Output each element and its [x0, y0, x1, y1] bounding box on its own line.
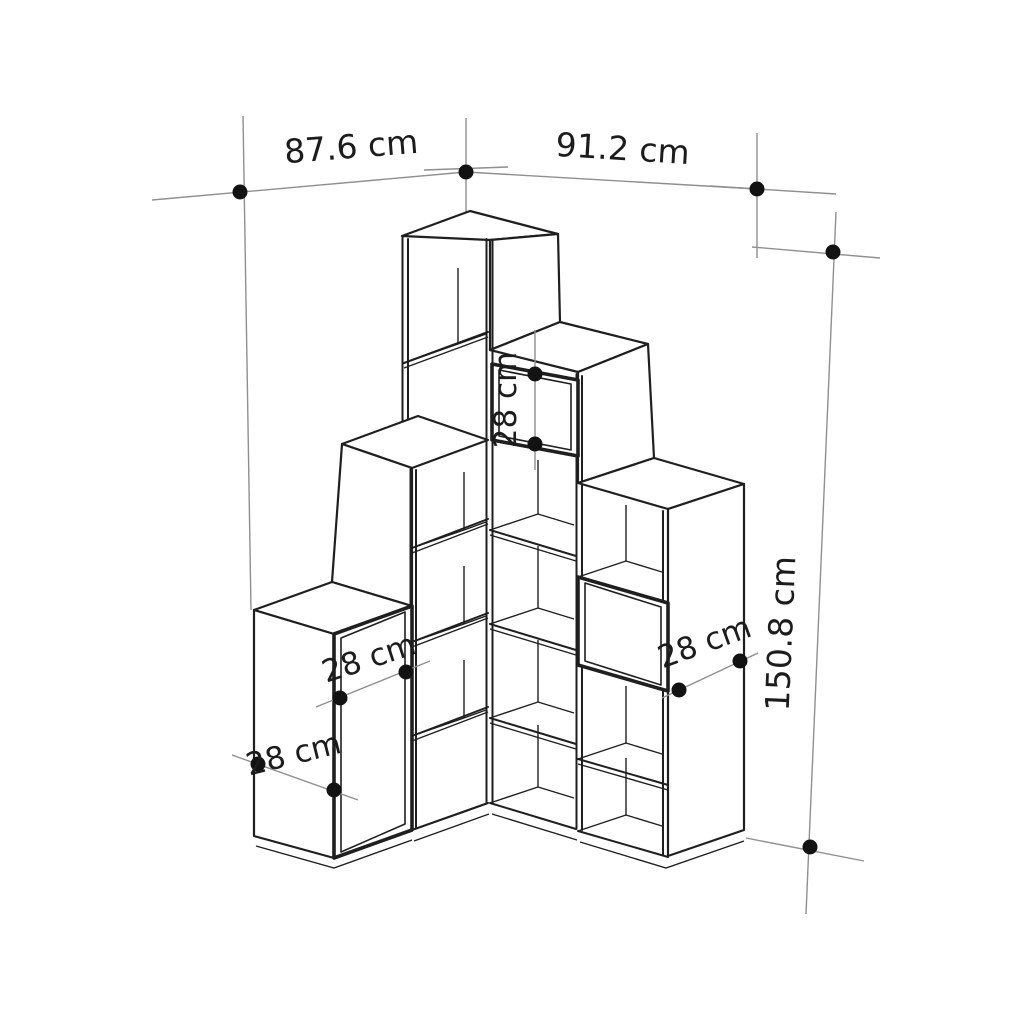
right-door-height-label: 28 cm [488, 352, 524, 449]
dimension-marker-dot [733, 654, 748, 669]
total-height-label: 150.8 cm [758, 555, 804, 712]
dimension-marker-dot [803, 840, 818, 855]
dimension-left-width: 87.6 cm [233, 122, 474, 200]
dimension-marker-dot [750, 182, 765, 197]
dimension-marker-dot [528, 437, 543, 452]
dimension-marker-dot [233, 185, 248, 200]
dimension-marker-dot [327, 783, 342, 798]
bookcase-drawing [254, 211, 744, 868]
right-width-label: 91.2 cm [555, 125, 691, 172]
dimension-marker-dot [672, 683, 687, 698]
dimension-right-width: 91.2 cm [555, 125, 765, 197]
dimension-marker-dot [528, 367, 543, 382]
dimension-total-height: 150.8 cm [758, 245, 841, 855]
diagram-page: 87.6 cm 91.2 cm 150.8 cm 28 cm 28 cm [0, 0, 1024, 1024]
dimension-marker-dot [826, 245, 841, 260]
dimension-marker-dot [459, 165, 474, 180]
left-width-label: 87.6 cm [283, 122, 420, 171]
dimension-marker-dot [333, 691, 348, 706]
furniture-dimension-diagram: 87.6 cm 91.2 cm 150.8 cm 28 cm 28 cm [0, 0, 1024, 1024]
